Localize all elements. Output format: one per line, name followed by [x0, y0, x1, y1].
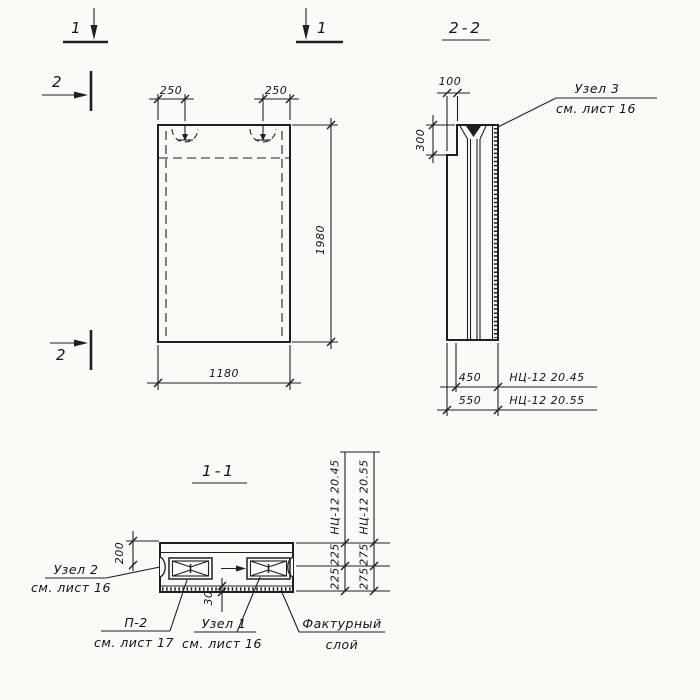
section-col-55: НЦ-12 20.55 275 275 — [358, 452, 379, 595]
front-dim-width: 1180 — [147, 345, 301, 390]
section-dim-200: 200 — [113, 531, 159, 571]
side-dim-step-value: 300 — [414, 129, 427, 152]
marker-1-left-label: 1 — [71, 19, 81, 37]
section-marker-1-left: 1 — [63, 8, 108, 42]
section-marker-1-right: 1 — [296, 8, 343, 42]
panel-drawing: 1 1 2 2 — [0, 0, 700, 700]
side-dim-top: 100 — [437, 75, 470, 151]
section-col-45-dim2: 225 — [329, 567, 342, 590]
section-void-pointer — [221, 566, 246, 572]
section-col-45-mark: НЦ-12 20.45 — [329, 459, 342, 534]
marker-1-right-label: 1 — [317, 19, 327, 37]
section-node1-ref: см. лист 16 — [182, 636, 262, 651]
side-view-title: 2-2 — [442, 19, 490, 40]
side-node3-callout: Узел 3 см. лист 16 — [498, 81, 657, 127]
drawing-sheet: 1 1 2 2 — [0, 0, 700, 700]
lifting-loop-right-icon — [250, 126, 276, 142]
section-mark-columns: НЦ-12 20.45 225 225 НЦ-12 20.55 275 275 — [296, 452, 390, 595]
section-dim-30-value: 30 — [202, 591, 215, 606]
front-view: 250 250 1980 1180 — [147, 84, 338, 390]
section-col-45-dim1: 225 — [329, 543, 342, 566]
side-profile-outline — [447, 125, 498, 340]
side-top-groove-icon — [460, 126, 486, 139]
section-marker-2-top: 2 — [42, 71, 91, 111]
front-dim-width-value: 1180 — [209, 367, 239, 380]
side-view: 2-2 100 — [414, 19, 657, 416]
front-hidden-lines — [159, 131, 289, 339]
side-view-title-label: 2-2 — [449, 19, 483, 37]
section-factur-callout: Фактурный слой — [281, 590, 385, 652]
side-node3-ref: см. лист 16 — [556, 101, 636, 116]
front-dim-loop-left: 250 — [149, 84, 194, 121]
section-node1-title: Узел 1 — [202, 616, 247, 631]
side-inner-layers — [468, 126, 496, 339]
section-facing-layer — [160, 586, 293, 589]
section-view-title: 1-1 — [192, 462, 247, 483]
section-view: 1-1 — [31, 452, 390, 652]
section-dim-30: 30 — [202, 578, 226, 612]
side-dim-550-value: 550 — [459, 394, 482, 407]
front-dim-height: 1980 — [292, 118, 338, 349]
section-p2-title: П-2 — [124, 615, 147, 630]
side-mark-450: НЦ-12 20.45 — [509, 371, 584, 384]
section-node2-callout: Узел 2 см. лист 16 — [31, 562, 160, 595]
front-dim-loop-right-value: 250 — [265, 84, 288, 97]
front-dim-loop-right: 250 — [254, 84, 299, 121]
front-dim-loop-left-value: 250 — [160, 84, 183, 97]
side-mark-550: НЦ-12 20.55 — [509, 394, 584, 407]
front-dim-height-value: 1980 — [314, 225, 327, 255]
section-col-55-mark: НЦ-12 20.55 — [358, 459, 371, 534]
section-node2-ref: см. лист 16 — [31, 580, 111, 595]
section-view-title-label: 1-1 — [202, 462, 236, 480]
lifting-loop-left-icon — [172, 126, 198, 142]
side-node3-title: Узел 3 — [575, 81, 620, 96]
section-body-outline — [160, 543, 293, 592]
marker-2-bottom-label: 2 — [56, 346, 66, 364]
section-col-55-dim2: 275 — [358, 567, 371, 590]
section-void-right-icon — [247, 558, 290, 579]
section-void-left-icon — [169, 558, 212, 579]
section-p2-ref: см. лист 17 — [94, 635, 174, 650]
section-node2-title: Узел 2 — [54, 562, 99, 577]
side-dim-450-value: 450 — [459, 371, 482, 384]
section-factur-title: Фактурный — [302, 616, 381, 631]
section-col-45: НЦ-12 20.45 225 225 — [329, 452, 350, 595]
side-dim-top-value: 100 — [439, 75, 462, 88]
section-dim-200-value: 200 — [113, 542, 126, 565]
section-marker-2-bottom: 2 — [50, 330, 91, 370]
section-factur-ref: слой — [326, 637, 359, 652]
marker-2-top-label: 2 — [52, 73, 62, 91]
section-col-55-dim1: 275 — [358, 543, 371, 566]
